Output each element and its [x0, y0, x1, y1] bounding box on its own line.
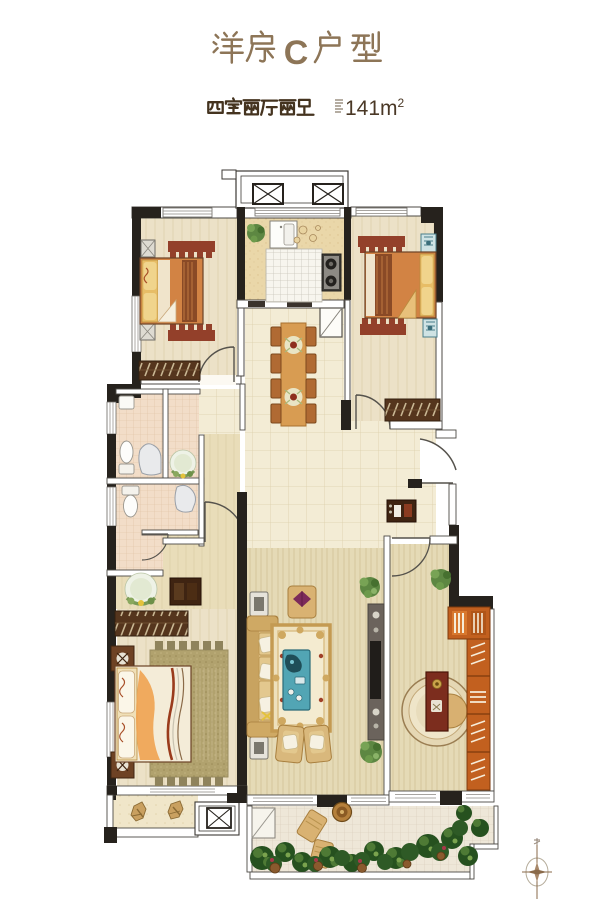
svg-text:C: C: [284, 34, 309, 72]
svg-text:141m2: 141m2: [345, 96, 405, 120]
